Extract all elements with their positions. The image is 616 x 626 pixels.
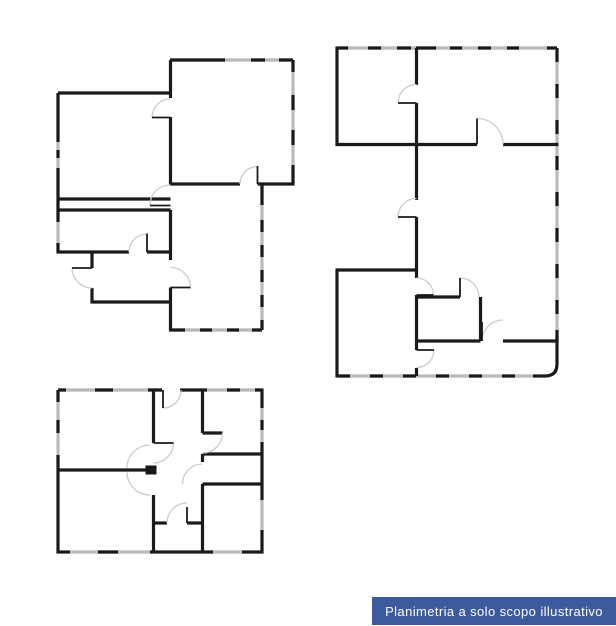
walls (336, 47, 559, 378)
floor-plan-upper-left (57, 60, 295, 332)
walls (57, 389, 264, 554)
disclaimer-text: Planimetria a solo scopo illustrativo (385, 604, 603, 619)
doors (72, 99, 258, 288)
floorplans-drawing (0, 0, 616, 626)
window-segments (337, 48, 557, 376)
doors (127, 390, 223, 523)
floor-plan-right (336, 47, 559, 378)
walls (57, 60, 295, 332)
doors (398, 85, 503, 368)
floor-plan-lower-left (57, 389, 264, 554)
disclaimer-banner: Planimetria a solo scopo illustrativo (372, 597, 616, 625)
floorplan-page: Planimetria a solo scopo illustrativo (0, 0, 616, 626)
